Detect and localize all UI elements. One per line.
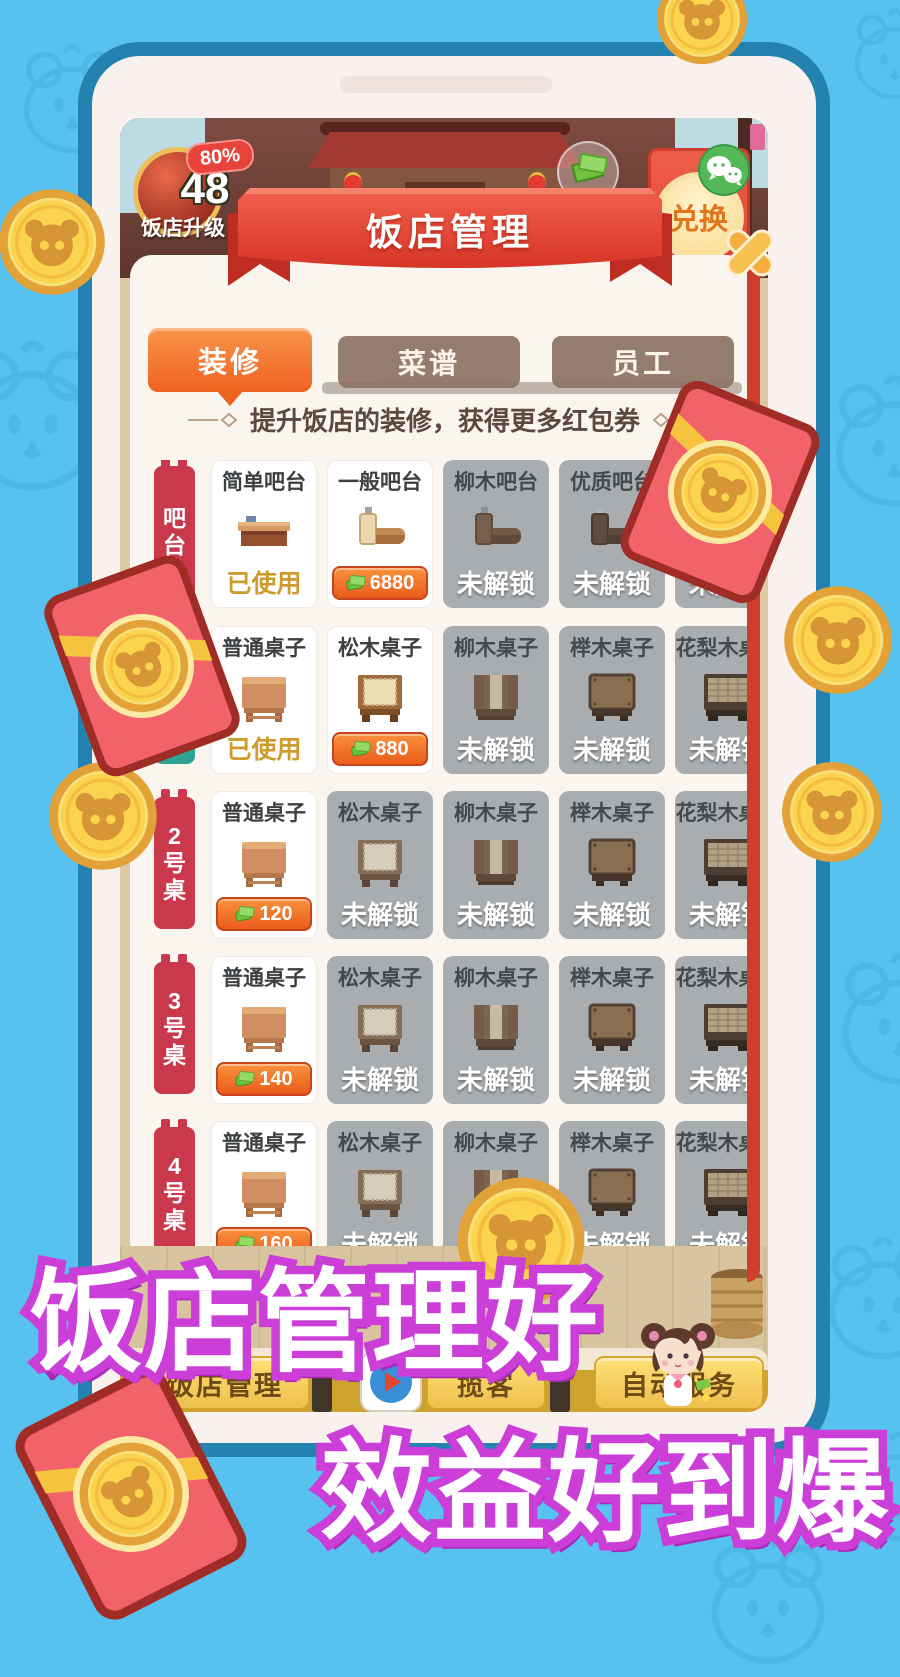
furniture-name: 松木桌子 xyxy=(327,962,433,992)
locked-label: 未解锁 xyxy=(443,1060,549,1097)
label-notch xyxy=(161,624,170,637)
money-icon xyxy=(346,575,366,591)
flourish-icon xyxy=(188,412,238,428)
label-notch xyxy=(161,460,170,471)
furniture-name: 柳木桌子 xyxy=(443,632,549,662)
furniture-image xyxy=(350,506,410,560)
promo-screenshot: { "promo": { "line1": "饭店管理好", "line2": … xyxy=(0,0,900,1600)
furniture-image xyxy=(582,1167,642,1221)
row-label: 吧台 xyxy=(154,466,195,598)
furniture-image xyxy=(466,837,526,891)
locked-label: 未解锁 xyxy=(559,895,665,932)
furniture-image xyxy=(582,672,642,726)
furniture-image xyxy=(582,1002,642,1056)
locked-label: 未解锁 xyxy=(559,564,665,601)
furniture-image xyxy=(466,1167,526,1221)
furniture-image xyxy=(698,1002,747,1056)
furniture-card[interactable]: 简单吧台已使用 xyxy=(211,460,317,608)
furniture-card[interactable]: 未解锁 xyxy=(675,460,747,608)
furniture-image xyxy=(350,1167,410,1221)
furniture-image xyxy=(234,1167,294,1221)
roof-tiles xyxy=(308,132,582,168)
furniture-card[interactable]: 柳木桌子未解锁 xyxy=(443,791,549,939)
furniture-name: 简单吧台 xyxy=(211,466,317,496)
furniture-name: 柳木桌子 xyxy=(443,1127,549,1157)
money-icon xyxy=(235,1071,255,1087)
furniture-name: 普通桌子 xyxy=(211,962,317,992)
furniture-image xyxy=(350,837,410,891)
furniture-image xyxy=(698,672,747,726)
buy-button[interactable]: 120 xyxy=(216,897,312,931)
bear-pattern-icon xyxy=(828,948,900,1093)
furniture-name: 普通桌子 xyxy=(211,1127,317,1157)
furniture-card[interactable]: 普通桌子120 xyxy=(211,791,317,939)
locked-label: 未解锁 xyxy=(675,730,747,767)
furniture-rows: 吧台简单吧台已使用一般吧台6880柳木吧台未解锁优质吧台未解锁未解锁1号桌普通桌… xyxy=(154,460,747,1272)
furniture-name: 榉木桌子 xyxy=(559,632,665,662)
furniture-name: 花梨木桌子 xyxy=(675,632,747,662)
close-icon[interactable] xyxy=(720,224,780,282)
furniture-image xyxy=(234,672,294,726)
tab-recipes[interactable]: 菜谱 xyxy=(338,336,520,388)
furniture-name: 花梨木桌子 xyxy=(675,797,747,827)
furniture-name: 柳木桌子 xyxy=(443,962,549,992)
furniture-name: 一般吧台 xyxy=(327,466,433,496)
furniture-name: 松木桌子 xyxy=(327,632,433,662)
price-value: 140 xyxy=(259,1068,292,1091)
furniture-card[interactable]: 花梨木桌子未解锁 xyxy=(675,626,747,774)
locked-label: 未解锁 xyxy=(327,895,433,932)
furniture-name: 榉木桌子 xyxy=(559,797,665,827)
locked-label: 未解锁 xyxy=(675,564,747,601)
furniture-card[interactable]: 普通桌子140 xyxy=(211,956,317,1104)
furniture-name: 普通桌子 xyxy=(211,632,317,662)
furniture-image xyxy=(350,1002,410,1056)
subtitle-text: 提升饭店的装修，获得更多红包券 xyxy=(250,401,640,438)
furniture-name: 柳木桌子 xyxy=(443,797,549,827)
furniture-image xyxy=(466,1002,526,1056)
furniture-name: 榉木桌子 xyxy=(559,962,665,992)
buy-button[interactable]: 6880 xyxy=(332,566,428,600)
bear-pattern-icon xyxy=(845,5,900,105)
price-value: 6880 xyxy=(370,572,415,595)
price-value: 120 xyxy=(259,903,292,926)
locked-label: 未解锁 xyxy=(443,564,549,601)
furniture-card[interactable]: 榉木桌子未解锁 xyxy=(559,626,665,774)
furniture-row: 吧台简单吧台已使用一般吧台6880柳木吧台未解锁优质吧台未解锁未解锁 xyxy=(154,460,747,608)
locked-label: 未解锁 xyxy=(675,1060,747,1097)
label-notch xyxy=(161,789,170,802)
furniture-name: 柳木吧台 xyxy=(443,466,549,496)
money-icon xyxy=(235,906,255,922)
furniture-image xyxy=(234,837,294,891)
price-value: 880 xyxy=(375,738,408,761)
label-notch xyxy=(178,789,187,802)
label-notch xyxy=(178,954,187,967)
furniture-row: 3号桌普通桌子140松木桌子未解锁柳木桌子未解锁榉木桌子未解锁花梨木桌子未解锁 xyxy=(154,956,747,1104)
waitress-character xyxy=(640,1310,716,1412)
tab-decoration[interactable]: 装修 xyxy=(148,328,312,392)
tab-staff[interactable]: 员工 xyxy=(552,336,734,388)
furniture-card[interactable]: 松木桌子未解锁 xyxy=(327,956,433,1104)
furniture-card[interactable]: 榉木桌子未解锁 xyxy=(559,956,665,1104)
bear-pattern-icon xyxy=(822,370,900,515)
furniture-image xyxy=(582,837,642,891)
row-label: 1号桌 xyxy=(154,632,195,764)
furniture-name: 榉木桌子 xyxy=(559,1127,665,1157)
furniture-image xyxy=(698,1167,747,1221)
game-screen: 48 饭店升级 80% 兑换 装修 菜谱 员工 提升饭店的装修，获得更多红包券 … xyxy=(120,118,768,1412)
furniture-card[interactable]: 优质吧台未解锁 xyxy=(559,460,665,608)
furniture-name: 优质吧台 xyxy=(559,466,665,496)
furniture-card[interactable]: 花梨木桌子未解锁 xyxy=(675,791,747,939)
pink-sign xyxy=(750,124,765,150)
buy-button[interactable]: 140 xyxy=(216,1062,312,1096)
locked-label: 未解锁 xyxy=(675,895,747,932)
locked-label: 未解锁 xyxy=(443,730,549,767)
furniture-card[interactable]: 柳木桌子未解锁 xyxy=(443,956,549,1104)
label-notch xyxy=(161,1119,170,1132)
dialog-frame-edge xyxy=(747,265,760,1282)
dialog-title: 饭店管理 xyxy=(220,202,680,256)
locked-label: 未解锁 xyxy=(327,1060,433,1097)
money-icon xyxy=(351,741,371,757)
furniture-image xyxy=(466,672,526,726)
row-label: 3号桌 xyxy=(154,962,195,1094)
furniture-image xyxy=(466,506,526,560)
label-notch xyxy=(161,954,170,967)
furniture-image xyxy=(582,506,642,560)
locked-label: 未解锁 xyxy=(559,730,665,767)
furniture-card[interactable]: 柳木吧台未解锁 xyxy=(443,460,549,608)
furniture-image xyxy=(698,470,747,524)
furniture-card[interactable]: 松木桌子880 xyxy=(327,626,433,774)
locked-label: 未解锁 xyxy=(443,895,549,932)
wechat-icon[interactable] xyxy=(698,144,750,196)
locked-label: 未解锁 xyxy=(559,1060,665,1097)
furniture-card[interactable]: 花梨木桌子未解锁 xyxy=(675,956,747,1104)
dialog-subtitle: 提升饭店的装修，获得更多红包券 xyxy=(160,401,730,438)
furniture-image xyxy=(234,506,294,560)
furniture-image xyxy=(698,837,747,891)
furniture-card[interactable]: 普通桌子已使用 xyxy=(211,626,317,774)
furniture-name: 普通桌子 xyxy=(211,797,317,827)
furniture-name: 花梨木桌子 xyxy=(675,962,747,992)
furniture-name: 松木桌子 xyxy=(327,1127,433,1157)
furniture-card[interactable]: 松木桌子未解锁 xyxy=(327,791,433,939)
used-label: 已使用 xyxy=(211,730,317,766)
phone-speaker xyxy=(340,76,552,93)
used-label: 已使用 xyxy=(211,564,317,600)
furniture-card[interactable]: 柳木桌子未解锁 xyxy=(443,626,549,774)
furniture-name: 花梨木桌子 xyxy=(675,1127,747,1157)
row-label: 2号桌 xyxy=(154,797,195,929)
furniture-row: 2号桌普通桌子120松木桌子未解锁柳木桌子未解锁榉木桌子未解锁花梨木桌子未解锁 xyxy=(154,791,747,939)
buy-button[interactable]: 880 xyxy=(332,732,428,766)
label-notch xyxy=(178,1119,187,1132)
label-notch xyxy=(178,460,187,471)
furniture-image xyxy=(350,672,410,726)
flourish-icon xyxy=(652,412,702,428)
furniture-name: 松木桌子 xyxy=(327,797,433,827)
furniture-card[interactable]: 一般吧台6880 xyxy=(327,460,433,608)
furniture-image xyxy=(234,1002,294,1056)
furniture-card[interactable]: 榉木桌子未解锁 xyxy=(559,791,665,939)
label-notch xyxy=(178,624,187,637)
furniture-row: 1号桌普通桌子已使用松木桌子880柳木桌子未解锁榉木桌子未解锁花梨木桌子未解锁 xyxy=(154,626,747,774)
